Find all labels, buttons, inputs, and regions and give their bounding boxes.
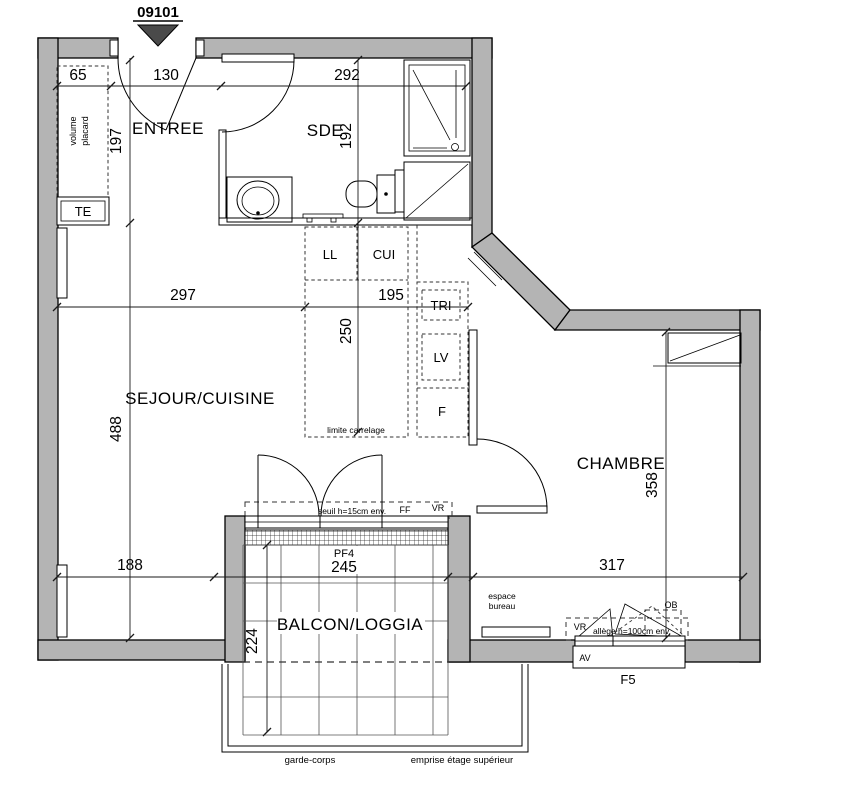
railing-outer — [222, 664, 528, 752]
entree-fixtures: volume placard TE — [57, 66, 109, 637]
sde-door-arc — [222, 60, 294, 132]
te-label: TE — [75, 204, 92, 219]
dim-197: 197 — [108, 128, 125, 154]
chambre-door-leaf — [477, 506, 547, 513]
av-label: AV — [579, 653, 590, 663]
sde-door-leaf — [222, 54, 294, 62]
washbasin-inner — [242, 187, 274, 215]
unit-marker: 09101 — [133, 4, 183, 46]
tri-label: TRI — [431, 298, 452, 313]
washer-diagonal — [406, 164, 468, 218]
chambre-label: CHAMBRE — [577, 454, 666, 473]
wall-sde-right — [472, 38, 492, 247]
wc-bowl — [346, 181, 377, 207]
dim-317: 317 — [599, 557, 625, 574]
shower-drain — [452, 144, 459, 151]
pf4-window: seuil h=15cm env. FF VR — [245, 455, 452, 528]
railing-inner — [228, 664, 522, 746]
lv-label: LV — [434, 350, 449, 365]
unit-number: 09101 — [137, 4, 179, 21]
seuil-label: seuil h=15cm env. — [318, 506, 386, 516]
placard-label: placard — [80, 116, 90, 146]
dim-130: 130 — [153, 67, 179, 84]
cui-label: CUI — [373, 247, 395, 262]
entrance-arrow — [138, 25, 178, 46]
sejour-label: SEJOUR/CUISINE — [125, 389, 275, 408]
kitchen-appliances: LL CUI TRI LV F limite carrelage — [305, 225, 468, 437]
dim-188: 188 — [117, 557, 143, 574]
radiator-entree — [57, 228, 67, 298]
allege-label: allège h=100cm env. — [593, 626, 671, 636]
bureau-label: bureau — [489, 601, 516, 611]
pf4-left-arc — [258, 455, 319, 516]
wall-diagonal — [472, 233, 570, 330]
dim-292: 292 — [334, 67, 360, 84]
emprise-label: emprise étage supérieur — [411, 755, 513, 766]
shower-diagonal — [413, 70, 450, 140]
chambre-door-arc — [477, 439, 547, 509]
wall-bottom-left — [38, 640, 245, 660]
wall-chambre-bottom-right — [685, 640, 760, 662]
entree-label: ENTREE — [132, 119, 204, 138]
wall-chambre-top — [555, 310, 760, 330]
sde-label: SDE — [307, 121, 343, 140]
desk — [482, 627, 550, 637]
vr-sejour-label: VR — [432, 503, 445, 513]
floor-plan-page: volume placard TE LL CUI TRI LV F limite… — [0, 0, 845, 800]
dim-488: 488 — [108, 416, 125, 442]
balcon-label: BALCON/LOGGIA — [277, 615, 423, 634]
volume-label: volume — [68, 116, 78, 145]
threshold-hatch — [245, 530, 448, 545]
ll-label: LL — [323, 247, 337, 262]
vr-chambre-label: VR — [574, 622, 587, 632]
washer-door — [395, 170, 404, 212]
wall-right — [740, 310, 760, 662]
wall-balcony-left-wing — [225, 516, 245, 662]
front-door-jamb-right — [196, 40, 204, 56]
floor-plan-svg: volume placard TE LL CUI TRI LV F limite… — [0, 0, 845, 800]
dim-224: 224 — [244, 628, 261, 654]
dim-245: 245 — [331, 559, 357, 576]
ff-label: FF — [400, 505, 411, 515]
f-label: F — [438, 404, 446, 419]
dim-195: 195 — [378, 287, 404, 304]
dim-250: 250 — [338, 318, 355, 344]
partition-entree-sde — [219, 130, 226, 225]
dim-358: 358 — [644, 472, 661, 498]
partition-sejour-chambre — [469, 330, 477, 445]
front-door-jamb-left — [110, 40, 118, 56]
washbasin-drain — [256, 211, 260, 215]
dim-297: 297 — [170, 287, 196, 304]
dim-65: 65 — [69, 67, 86, 84]
garde-corps-label: garde-corps — [285, 755, 336, 766]
closet-diagonal — [670, 335, 740, 361]
wall-left — [38, 38, 58, 660]
towel-rail — [303, 214, 343, 218]
wall-balcony-right-wing — [448, 516, 470, 662]
f5-label: F5 — [620, 672, 635, 687]
espace-label: espace — [488, 591, 516, 601]
shower-tray — [404, 60, 470, 156]
wc-button — [384, 192, 388, 196]
